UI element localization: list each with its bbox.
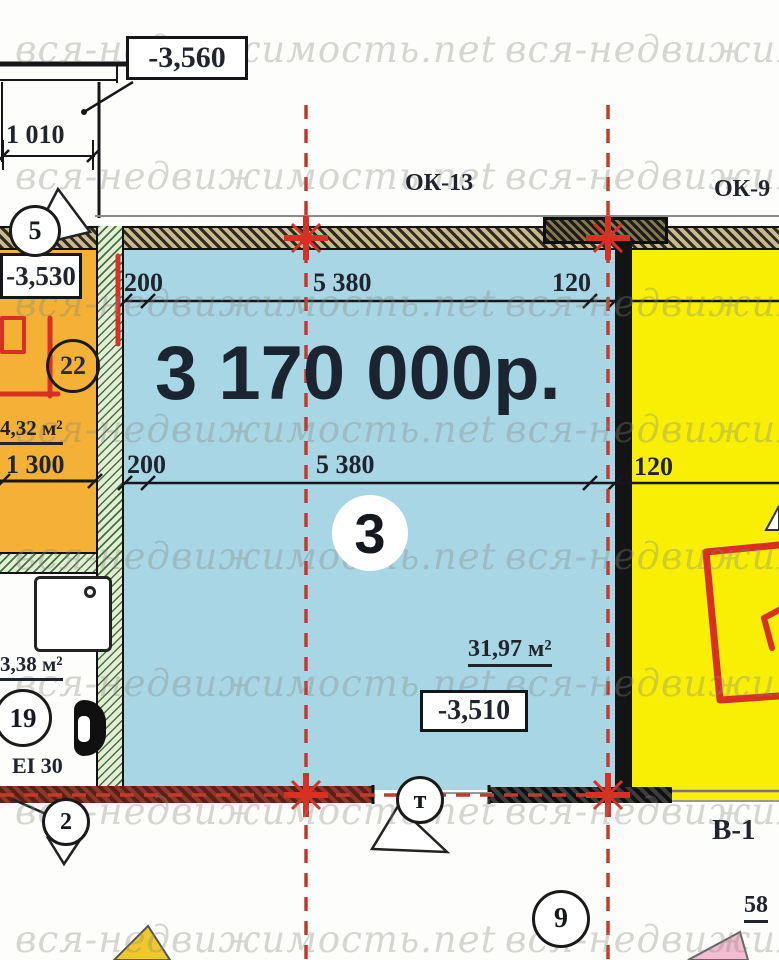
axis-marker-2: 2 bbox=[42, 798, 90, 846]
main-room-number-value: 3 bbox=[354, 501, 385, 566]
elevation-box-main-room: -3,510 bbox=[420, 690, 528, 732]
axis-9-value: 9 bbox=[554, 903, 568, 935]
dim-row2-200: 200 bbox=[127, 450, 166, 480]
left-room-number: 22 bbox=[46, 339, 100, 393]
dim-row2-5380: 5 380 bbox=[316, 450, 375, 480]
axis-5-value: 5 bbox=[29, 216, 42, 246]
dim-1300: 1 300 bbox=[6, 450, 65, 480]
elevation-outside-value: -3,560 bbox=[148, 41, 226, 75]
elevation-box-left-room: -3,530 bbox=[0, 253, 82, 299]
dim-row2-120: 120 bbox=[634, 452, 673, 482]
pink-triangle-shape bbox=[688, 932, 748, 960]
window-label-ok13: ОК-13 bbox=[405, 170, 473, 197]
main-room-area: 31,97 м² bbox=[468, 636, 552, 667]
bench-mark-icon bbox=[766, 506, 779, 530]
dim-row1-5380: 5 380 bbox=[313, 268, 372, 298]
bathroom-number-value: 19 bbox=[10, 703, 37, 734]
main-room-number: 3 bbox=[332, 495, 408, 571]
window-label-ok9: ОК-9 bbox=[714, 176, 770, 203]
axis-marker-5: 5 bbox=[9, 205, 61, 257]
bathroom-area: 3,38 м² bbox=[0, 652, 63, 681]
floor-plan: вся-недвижимость.net вся-недвижимость.ne… bbox=[0, 0, 779, 960]
axis-2-value: 2 bbox=[60, 809, 72, 836]
dim-row1-120: 120 bbox=[552, 268, 591, 298]
elevation-box-outside: -3,560 bbox=[126, 36, 248, 80]
dim-row1-200: 200 bbox=[124, 268, 163, 298]
dim-58: 58 bbox=[744, 892, 768, 923]
left-room-number-value: 22 bbox=[60, 351, 86, 381]
price-label: 3 170 000р. bbox=[155, 330, 561, 417]
axis-marker-9: 9 bbox=[532, 890, 590, 948]
left-room-area: 4,32 м² bbox=[0, 416, 63, 445]
axis-t-value: т bbox=[414, 785, 427, 815]
elevation-left-room-value: -3,530 bbox=[6, 261, 76, 292]
yellow-triangle-shape bbox=[114, 926, 170, 960]
fire-rating-label: EI 30 bbox=[12, 753, 63, 779]
elevation-main-room-value: -3,510 bbox=[438, 695, 510, 727]
beam-label: В-1 bbox=[712, 814, 756, 847]
dim-1010: 1 010 bbox=[6, 120, 65, 150]
axis-marker-t: т bbox=[396, 776, 444, 824]
